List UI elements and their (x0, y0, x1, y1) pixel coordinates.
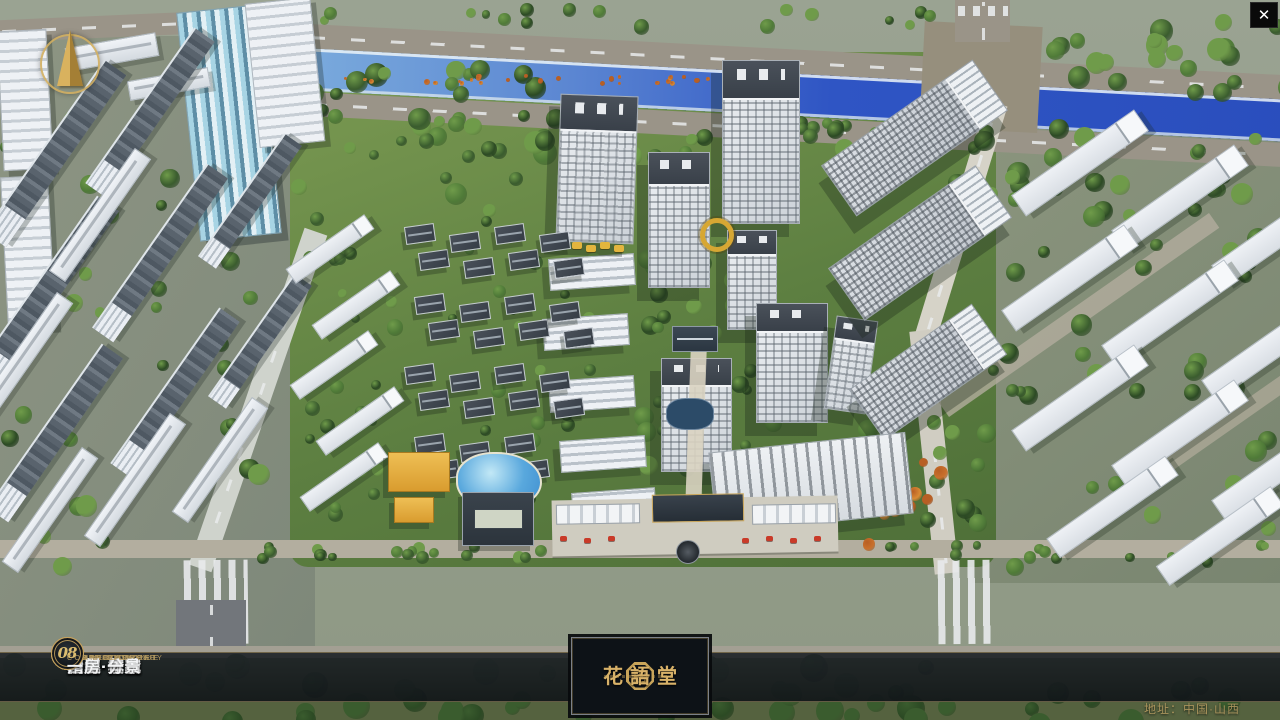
scene-object (1039, 546, 1051, 558)
scene-object (1049, 119, 1069, 139)
scene-object (481, 141, 497, 157)
scene-object (1129, 383, 1145, 399)
scene-object (593, 5, 607, 19)
scene-object (614, 245, 624, 252)
scene-object (752, 503, 836, 524)
scene-object (408, 108, 431, 131)
scene-object (429, 548, 439, 558)
scene-object (742, 538, 749, 543)
logo-caption-line (604, 675, 676, 678)
scene-object (1005, 170, 1020, 185)
scene-object (344, 142, 356, 154)
scene-object (1144, 506, 1162, 524)
scene-object (538, 78, 544, 84)
scene-object (248, 464, 270, 486)
scene-object (386, 296, 397, 307)
scene-object (1215, 14, 1232, 31)
scene-object (466, 8, 476, 18)
scene-object (1083, 206, 1105, 228)
scene-object (919, 458, 928, 467)
scene-object (1006, 263, 1025, 282)
scene-object (790, 538, 797, 543)
scene-object (521, 17, 533, 29)
compass-needle (57, 30, 83, 86)
scene-object (652, 493, 744, 523)
scene-object (424, 79, 430, 85)
scene-object (1135, 260, 1151, 276)
scene-object (387, 319, 403, 335)
scene-object (722, 60, 800, 224)
scene-object (652, 322, 664, 334)
scene-object (1150, 239, 1163, 252)
scene-object (1184, 384, 1201, 401)
presentation-window: ✕ 01 品牌·介绍 BRAND SUPPORT 02 区位·价值 LOCATI… (0, 0, 1280, 720)
scene-object (655, 81, 660, 86)
project-logo[interactable]: 花語堂 (571, 637, 709, 715)
scene-object (518, 110, 530, 122)
scene-object (686, 299, 701, 314)
scene-object (310, 212, 324, 226)
scene-object (760, 19, 775, 34)
scene-object (470, 78, 474, 82)
scene-object (363, 78, 366, 81)
scene-object (686, 134, 697, 145)
scene-object (1148, 50, 1166, 68)
scene-object (1085, 173, 1105, 193)
scene-object (1207, 38, 1230, 61)
scene-object (464, 118, 481, 135)
scene-object (368, 488, 380, 500)
scene-object (1046, 41, 1065, 60)
scene-object (448, 116, 464, 132)
scene-object (396, 136, 406, 146)
scene-object (479, 81, 483, 85)
scene-object (950, 549, 962, 561)
scene-object (694, 78, 699, 83)
scene-object (498, 13, 511, 26)
scene-object (1180, 60, 1196, 76)
scene-object (556, 503, 640, 524)
scene-object (79, 267, 92, 280)
scene-object (482, 10, 490, 18)
nav-sub-08: COMMUNITY (67, 655, 132, 662)
scene-object (600, 242, 610, 249)
scene-object (682, 75, 686, 79)
scene-object (676, 540, 700, 564)
scene-object (15, 406, 33, 424)
scene-object (971, 458, 985, 472)
scene-object (780, 4, 793, 17)
scene-object (53, 557, 72, 576)
scene-object (648, 152, 710, 288)
scene-object (520, 3, 534, 17)
scene-object (560, 536, 567, 541)
scene-object (756, 303, 828, 423)
scene-object (634, 19, 649, 34)
scene-object (1024, 551, 1036, 563)
scene-object (827, 122, 844, 139)
scene-object (905, 20, 915, 30)
scene-object (1184, 361, 1204, 381)
scene-object (938, 560, 993, 645)
scene-object (462, 492, 534, 546)
scene-object (844, 708, 860, 720)
scene-object (324, 7, 337, 20)
scene-object (1166, 45, 1183, 62)
scene-object (156, 200, 167, 211)
scene-object (706, 77, 710, 81)
compass-icon (40, 34, 100, 94)
scene-object (157, 360, 169, 372)
close-icon[interactable]: ✕ (1250, 2, 1278, 28)
scene-object (1125, 553, 1134, 562)
scene-object (1006, 384, 1019, 397)
scene-object (1245, 440, 1267, 462)
scene-object (555, 94, 638, 245)
scene-object (805, 8, 818, 21)
scene-object (1249, 133, 1262, 146)
scene-object (524, 74, 528, 78)
scene-object (160, 169, 180, 189)
scene-object (885, 16, 894, 25)
scene-object (291, 179, 307, 195)
scene-object (609, 76, 615, 82)
scene-object (394, 497, 434, 523)
scene-object (584, 538, 591, 543)
scene-object (305, 434, 315, 444)
scene-object (531, 416, 545, 430)
scene-object (388, 452, 450, 492)
scene-object (586, 245, 596, 252)
scene-object (1006, 558, 1024, 576)
scene-object (1147, 33, 1162, 48)
scene-object (433, 81, 438, 86)
scene-object (330, 88, 343, 101)
scene-object (371, 380, 381, 390)
scene-object (559, 435, 647, 473)
scene-object (666, 398, 714, 430)
scene-object (920, 512, 936, 528)
scene-object (296, 710, 316, 720)
scene-object (608, 536, 615, 541)
scene-object (245, 0, 326, 148)
scene-object (977, 424, 996, 443)
scene-object (934, 466, 948, 480)
scene-object (316, 552, 325, 561)
scene-object (76, 495, 97, 516)
scene-object (563, 3, 576, 16)
scene-object (933, 446, 947, 460)
scene-object (922, 494, 933, 505)
scene-object (1110, 175, 1129, 194)
scene-object (958, 6, 1008, 16)
scene-object (445, 183, 467, 205)
scene-object (480, 425, 491, 436)
scene-object (369, 150, 379, 160)
scene-object (378, 67, 391, 80)
scene-object (696, 129, 713, 146)
scene-object (731, 376, 748, 393)
scene-object (1068, 66, 1090, 88)
scene-object (1075, 347, 1090, 362)
scene-object (927, 415, 941, 429)
scene-object (1, 430, 19, 448)
scene-object (445, 77, 459, 91)
scene-object (1070, 33, 1085, 48)
scene-object (863, 538, 876, 551)
scene-object (1261, 542, 1269, 550)
scene-object (330, 502, 341, 513)
scene-object (766, 536, 773, 541)
scene-object (672, 326, 718, 352)
scene-object (243, 291, 257, 305)
scene-object (956, 499, 975, 518)
scene-object (814, 536, 821, 541)
scene-object (416, 551, 429, 564)
scene-object (328, 553, 336, 561)
scene-object (924, 10, 936, 22)
project-address: 地址：中国·山西 (1144, 700, 1240, 717)
scene-object (1038, 246, 1050, 258)
scene-object (560, 290, 570, 300)
scene-object (434, 116, 445, 127)
scene-object (700, 218, 734, 252)
scene-object (572, 242, 582, 249)
scene-object (974, 131, 994, 151)
scene-object (264, 546, 276, 558)
scene-object (1071, 314, 1092, 335)
